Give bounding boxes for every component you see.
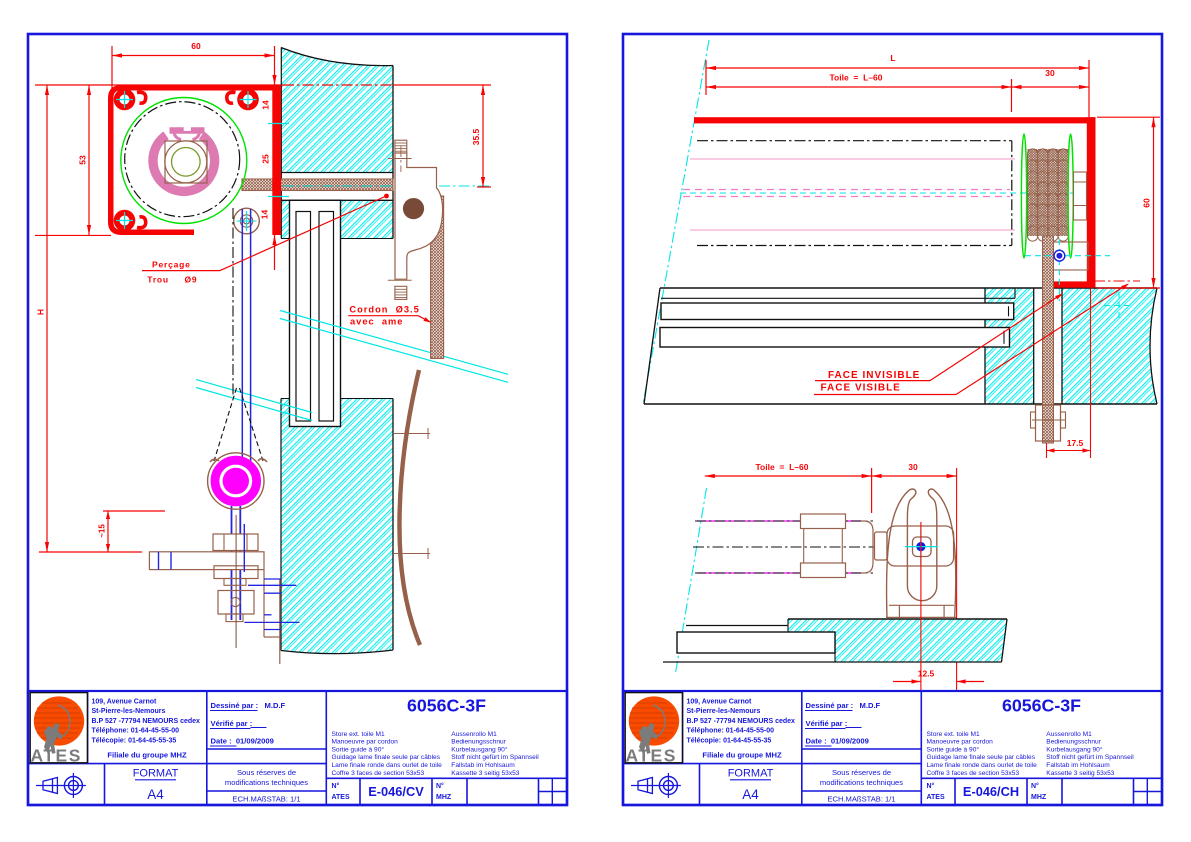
svg-text:Lame finale ronde dans ourlet: Lame finale ronde dans ourlet de toile: [927, 762, 1038, 769]
svg-text:Aussenrollo M1: Aussenrollo M1: [451, 731, 497, 738]
svg-text:N°: N°: [332, 782, 340, 790]
svg-text:14: 14: [261, 100, 271, 110]
svg-text:35.5: 35.5: [471, 128, 481, 145]
svg-text:Toile = L–60: Toile = L–60: [830, 73, 883, 83]
svg-text:Kurbelausgang 90°: Kurbelausgang 90°: [451, 745, 508, 753]
svg-text:~15: ~15: [98, 524, 107, 538]
svg-text:Sous réserves de: Sous réserves de: [237, 768, 296, 777]
svg-text:109, Avenue Carnot: 109, Avenue Carnot: [687, 699, 753, 706]
svg-text:Cordon Ø3.5: Cordon Ø3.5: [349, 305, 419, 315]
svg-text:St-Pierre-les-Nemours: St-Pierre-les-Nemours: [687, 708, 761, 715]
svg-text:modifications techniques: modifications techniques: [820, 778, 903, 787]
svg-text:Store ext. toile M1: Store ext. toile M1: [927, 731, 980, 738]
svg-text:Téléphone: 01-64-45-55-00: Téléphone: 01-64-45-55-00: [92, 728, 180, 735]
svg-text:Télécopie: 01-64-45-55-35: Télécopie: 01-64-45-55-35: [687, 737, 772, 744]
svg-text:Manoeuvre par cordon: Manoeuvre par cordon: [332, 739, 399, 746]
svg-text:Filiale du groupe MHZ: Filiale du groupe MHZ: [107, 751, 187, 760]
svg-text:Bedienungsschnur: Bedienungsschnur: [1046, 739, 1101, 746]
svg-text:Téléphone: 01-64-45-55-00: Téléphone: 01-64-45-55-00: [687, 728, 775, 735]
svg-text:modifications techniques: modifications techniques: [225, 778, 308, 787]
svg-text:30: 30: [1045, 68, 1055, 78]
svg-text:A4: A4: [147, 787, 164, 802]
svg-text:ECH.MAßSTAB: 1/1: ECH.MAßSTAB: 1/1: [232, 795, 300, 804]
svg-text:St-Pierre-les-Nemours: St-Pierre-les-Nemours: [92, 708, 166, 715]
svg-text:Vérifié par :: Vérifié par :: [211, 719, 253, 728]
svg-text:Perçage: Perçage: [152, 260, 191, 270]
svg-text:Date : 01/09/2009: Date : 01/09/2009: [806, 737, 869, 746]
svg-text:Fallstab im Hohlsaum: Fallstab im Hohlsaum: [451, 762, 515, 769]
svg-text:Stoff nicht gefürt im Spannsei: Stoff nicht gefürt im Spannseil: [451, 754, 539, 761]
svg-text:Guidage lame finale seule par: Guidage lame finale seule par câbles: [332, 754, 441, 761]
svg-text:6056C-3F: 6056C-3F: [407, 696, 486, 716]
svg-text:17.5: 17.5: [1067, 438, 1084, 448]
svg-text:avec ame: avec ame: [350, 316, 403, 326]
svg-text:60: 60: [191, 41, 201, 51]
svg-text:Aussenrollo M1: Aussenrollo M1: [1046, 731, 1092, 738]
svg-text:Sous réserves de: Sous réserves de: [832, 768, 891, 777]
svg-text:MHZ: MHZ: [436, 794, 452, 801]
svg-text:Filiale du groupe MHZ: Filiale du groupe MHZ: [702, 751, 782, 760]
svg-text:Stoff nicht gefürt im Spannsei: Stoff nicht gefürt im Spannseil: [1046, 754, 1134, 761]
svg-text:Dessiné par : M.D.F: Dessiné par : M.D.F: [806, 701, 881, 710]
svg-text:FACE VISIBLE: FACE VISIBLE: [821, 383, 901, 394]
svg-text:B.P 527 -77794 NEMOURS cedex: B.P 527 -77794 NEMOURS cedex: [687, 718, 796, 725]
svg-text:ATES: ATES: [626, 746, 677, 766]
svg-text:Guidage lame finale seule par: Guidage lame finale seule par câbles: [927, 754, 1036, 761]
svg-text:ATES: ATES: [332, 794, 350, 801]
svg-text:Date : 01/09/2009: Date : 01/09/2009: [211, 737, 274, 746]
svg-text:6056C-3F: 6056C-3F: [1002, 696, 1081, 716]
svg-text:N°: N°: [1031, 782, 1039, 790]
svg-text:L: L: [890, 53, 895, 63]
svg-text:30: 30: [908, 462, 918, 472]
svg-text:Trou: Trou: [147, 275, 169, 285]
svg-text:Sortie guide à 90°: Sortie guide à 90°: [927, 745, 980, 753]
svg-text:B.P 527 -77794 NEMOURS cedex: B.P 527 -77794 NEMOURS cedex: [92, 718, 201, 725]
svg-text:Lame finale ronde dans ourlet: Lame finale ronde dans ourlet de toile: [332, 762, 443, 769]
svg-text:Kassette 3 seitig 53x53: Kassette 3 seitig 53x53: [451, 770, 520, 777]
svg-text:14: 14: [260, 210, 270, 220]
svg-text:Ø9: Ø9: [185, 275, 198, 285]
svg-text:Bedienungsschnur: Bedienungsschnur: [451, 739, 506, 746]
svg-text:Manoeuvre par cordon: Manoeuvre par cordon: [927, 739, 994, 746]
svg-text:FORMAT: FORMAT: [133, 768, 179, 780]
svg-text:53: 53: [78, 155, 88, 165]
svg-text:ATES: ATES: [31, 746, 82, 766]
svg-text:Kassette 3 seitig 53x53: Kassette 3 seitig 53x53: [1046, 770, 1115, 777]
svg-text:60: 60: [1142, 198, 1152, 208]
svg-text:12.5: 12.5: [918, 669, 935, 679]
svg-text:FACE INVISIBLE: FACE INVISIBLE: [828, 370, 920, 381]
svg-text:Vérifié par :: Vérifié par :: [806, 719, 848, 728]
svg-text:MHZ: MHZ: [1031, 794, 1047, 801]
svg-text:ATES: ATES: [927, 794, 945, 801]
svg-text:E-046/CH: E-046/CH: [963, 784, 1019, 799]
svg-text:H: H: [36, 309, 46, 315]
svg-text:ECH.MAßSTAB: 1/1: ECH.MAßSTAB: 1/1: [827, 795, 895, 804]
svg-text:Store ext. toile M1: Store ext. toile M1: [332, 731, 385, 738]
svg-text:N°: N°: [436, 782, 444, 790]
svg-text:Télécopie: 01-64-45-55-35: Télécopie: 01-64-45-55-35: [92, 737, 177, 744]
svg-text:Coffre 3 faces de section 53x5: Coffre 3 faces de section 53x53: [332, 770, 425, 777]
svg-text:Coffre 3 faces de section 53x5: Coffre 3 faces de section 53x53: [927, 770, 1020, 777]
svg-text:Dessiné par : M.D.F: Dessiné par : M.D.F: [211, 701, 286, 710]
svg-text:FORMAT: FORMAT: [728, 768, 774, 780]
svg-text:109, Avenue Carnot: 109, Avenue Carnot: [92, 699, 158, 706]
svg-text:A4: A4: [742, 787, 759, 802]
svg-text:Sortie guide à 90°: Sortie guide à 90°: [332, 745, 385, 753]
svg-text:Kurbelausgang 90°: Kurbelausgang 90°: [1046, 745, 1103, 753]
svg-text:Toile = L–60: Toile = L–60: [756, 462, 809, 472]
svg-text:Fallstab im Hohlsaum: Fallstab im Hohlsaum: [1046, 762, 1110, 769]
svg-text:E-046/CV: E-046/CV: [368, 784, 424, 799]
svg-text:N°: N°: [927, 782, 935, 790]
svg-text:25: 25: [261, 154, 271, 164]
